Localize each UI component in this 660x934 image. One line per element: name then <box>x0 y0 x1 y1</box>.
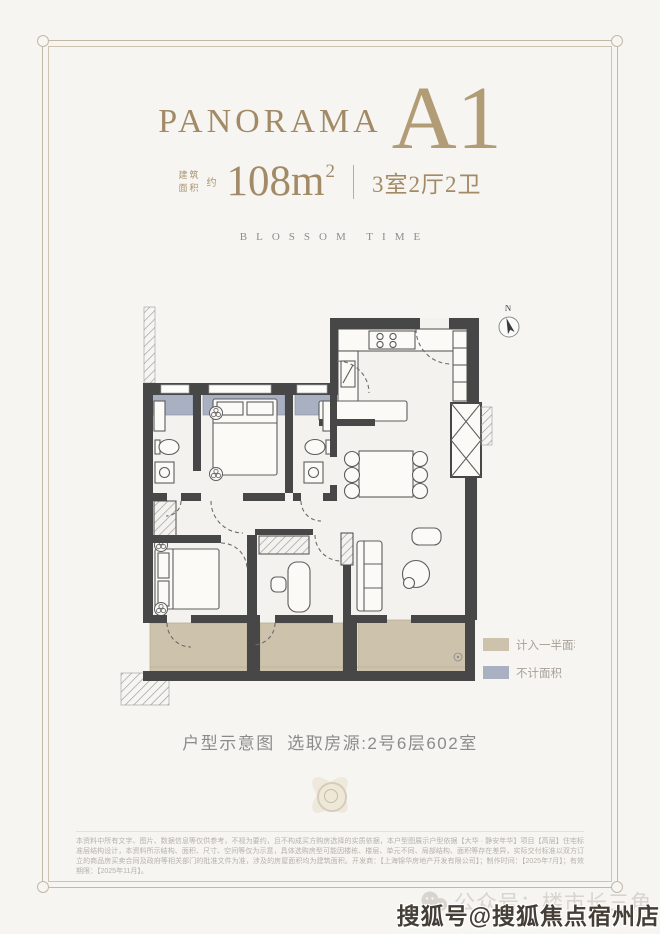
legend-swatch-half-area <box>483 638 509 651</box>
unit-code: A1 <box>392 82 502 156</box>
floorplan-poster: PANORAMA A1 建筑 面积 约 108m2 3室2厅2卫 BLOSSOM… <box>0 0 660 934</box>
chair-icon <box>271 577 286 592</box>
desk-icon <box>288 562 310 612</box>
plan-legend: 计入一半面积 不计面积 <box>483 638 575 680</box>
sohu-watermark: 搜狐号@搜狐焦点宿州店 <box>397 897 660 931</box>
ornament-seal <box>317 782 347 812</box>
legend-label-half-area: 计入一半面积 <box>516 638 575 652</box>
area-prefix-line1: 建筑 <box>179 169 201 181</box>
wardrobe-hatch <box>154 501 176 539</box>
bedroom-1 <box>210 399 278 481</box>
sofa-icon <box>357 541 382 611</box>
frame-corner-loop <box>37 35 49 47</box>
area-row: 建筑 面积 约 108m2 3室2厅2卫 <box>0 160 660 203</box>
area-prefix: 建筑 面积 <box>179 169 201 193</box>
dining-table-icon <box>359 451 413 497</box>
floorplan-svg: N 计入一半面积 不计面积 <box>75 305 575 715</box>
frame-corner-loop <box>37 881 49 893</box>
area-value: 108m2 <box>227 160 335 203</box>
ornament-seal-inner <box>324 789 338 803</box>
cabinet-column <box>453 331 467 401</box>
frame-corner-loop <box>611 35 623 47</box>
header: PANORAMA A1 <box>0 58 660 156</box>
compass-north-label: N <box>505 305 512 313</box>
tagline: BLOSSOM TIME <box>0 231 660 243</box>
dining-area <box>345 451 428 499</box>
area-number: 108m <box>227 158 325 205</box>
compass-icon: N <box>499 305 519 337</box>
wardrobe-flower-icon <box>155 603 168 616</box>
area-superscript: 2 <box>325 161 335 182</box>
area-approx: 约 <box>207 174 217 189</box>
balconies <box>150 620 468 673</box>
wardrobe-flower-icon <box>210 407 223 420</box>
wardrobe-flower-icon <box>210 468 223 481</box>
brand-title: PANORAMA <box>158 103 381 141</box>
area-prefix-line2: 面积 <box>179 182 201 194</box>
plan-caption: 户型示意图 选取房源:2号6层602室 <box>0 729 660 754</box>
legend-swatch-excluded-area <box>483 666 509 679</box>
disclaimer-text: 本资料中所有文字、图片、数据信息等仅供参考，不视为要约，且不构成买方购房选择的实… <box>76 831 584 877</box>
header-divider <box>353 165 354 199</box>
legend-label-excluded-area: 不计面积 <box>516 667 562 680</box>
ornament-flower <box>297 762 363 828</box>
room-count: 3室2厅2卫 <box>372 165 482 199</box>
bookshelf-hatch <box>259 536 309 554</box>
side-table-icon <box>412 528 441 545</box>
